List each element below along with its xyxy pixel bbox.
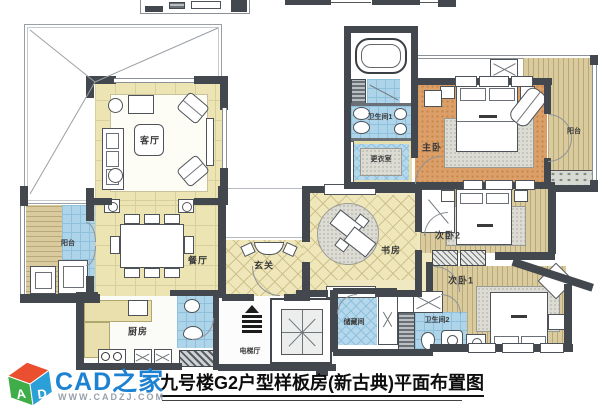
dining-chair (184, 236, 194, 254)
side-table (424, 90, 442, 107)
wall-segment (76, 292, 98, 298)
plan-shape (351, 103, 411, 106)
window (592, 58, 597, 184)
dressing-room-label: 更衣室 (371, 154, 392, 164)
wall-segment (213, 292, 219, 370)
elevator-shaft (270, 298, 332, 364)
dining-chair (164, 268, 180, 278)
wall-segment (170, 290, 218, 296)
master-bed (456, 84, 518, 152)
dining-chair (110, 236, 120, 254)
window-box (540, 343, 564, 353)
wall-segment (544, 84, 551, 114)
study-label: 书房 (381, 244, 401, 257)
dining-chair (144, 268, 160, 278)
top-drawing-fragment-wall (285, 0, 331, 5)
wall-segment (330, 290, 338, 352)
wall-segment (222, 294, 254, 301)
wall-segment (86, 198, 112, 205)
headboard-panel (455, 76, 477, 87)
console-table (128, 95, 154, 114)
washbasin (394, 108, 407, 120)
cushion (489, 88, 515, 101)
bath1-cabinet (351, 79, 366, 104)
wall-segment (590, 180, 598, 192)
window-bench (206, 118, 214, 166)
storage-label: 储藏间 (344, 317, 365, 327)
dresser (432, 250, 458, 266)
window (222, 108, 227, 170)
foyer-label: 玄关 (254, 259, 274, 272)
wall-panel (485, 180, 513, 190)
column (178, 199, 194, 213)
cushion (486, 193, 509, 204)
wall-segment (495, 252, 555, 260)
washing-machine (30, 266, 56, 294)
wall-segment (344, 182, 420, 189)
wall-segment (86, 205, 94, 221)
wall-segment (220, 76, 228, 110)
wall-segment (564, 284, 572, 350)
nightstand (441, 190, 455, 202)
plan-shape (331, 2, 371, 3)
window (114, 78, 196, 83)
wall-segment (590, 55, 598, 65)
plan-shape (420, 2, 438, 3)
furniture (191, 1, 221, 9)
wall-segment (302, 186, 310, 242)
wall-segment (218, 186, 226, 242)
washbasin (394, 123, 407, 135)
balcony-left-label: 阳台 (61, 238, 75, 248)
decor-dash (479, 115, 497, 118)
dining-table (120, 224, 184, 268)
elevator-hall-label: 电梯厅 (240, 346, 261, 356)
wall-segment (218, 364, 336, 371)
bedroom2-label: 次卧2 (435, 229, 461, 242)
side-table (108, 168, 123, 183)
plan-shape (113, 352, 122, 361)
dining-room-label: 餐厅 (188, 254, 208, 267)
dresser (460, 250, 486, 266)
ac-shaft (398, 312, 415, 352)
top-drawing-fragment-left (140, 0, 250, 14)
decor-dash (511, 315, 527, 318)
stairs-bar (242, 325, 262, 328)
wall-segment (296, 290, 328, 297)
nightstand (440, 86, 455, 99)
wall-segment (438, 0, 456, 7)
cushion (35, 272, 52, 289)
toilet (353, 121, 370, 134)
bathroom2-label: 卫生间2 (425, 315, 450, 325)
plan-shape (361, 44, 401, 68)
wall-segment (231, 0, 247, 12)
dining-chair (124, 268, 140, 278)
plan-shape (101, 352, 110, 361)
plan-shape (457, 121, 517, 122)
window-box (468, 343, 496, 353)
bedroom1-label: 次卧1 (448, 274, 474, 287)
drawing-title: 九号楼G2户型样板房(新古典)平面布置图 (160, 372, 484, 397)
louver-panel (169, 2, 185, 9)
wall-segment (218, 242, 226, 298)
bathroom1-label: 卫生间1 (368, 112, 393, 122)
wall-panel (463, 180, 483, 190)
stairs-bar (242, 320, 262, 323)
window (20, 205, 25, 295)
bath1-shower (367, 79, 400, 105)
hall-closet (378, 293, 398, 345)
kitchen-label: 厨房 (128, 325, 148, 338)
nightstand (514, 190, 528, 202)
wall-segment (333, 349, 433, 356)
wall-segment (344, 26, 418, 33)
brand-logo-icon: A D (6, 360, 54, 408)
wall-segment (411, 26, 418, 84)
fridge (128, 300, 148, 316)
headboard-panel (511, 76, 533, 87)
cushion (460, 88, 486, 101)
title-underline (162, 400, 462, 401)
side-table (108, 98, 123, 113)
window-box (502, 343, 534, 353)
plan-shape (182, 202, 192, 212)
plan-shape (281, 309, 323, 355)
balcony-right-label: 阳台 (567, 126, 581, 136)
wall-segment (548, 186, 556, 254)
cushion (460, 193, 483, 204)
dining-chair (124, 214, 140, 224)
wall-panel (515, 180, 535, 190)
cushion (63, 266, 84, 288)
plan-shape (245, 305, 259, 313)
cushion (106, 151, 119, 167)
floor-plan-canvas: 客厅 餐厅 厨房 玄关 电梯厅 书房 主卧 次卧2 次卧1 卫生间1 卫生间2 … (0, 0, 600, 410)
cross-line (184, 163, 203, 179)
stairs-bar (242, 315, 262, 318)
cross-line (302, 310, 303, 354)
wall-segment (344, 26, 351, 189)
wall-segment (415, 186, 422, 232)
cross-line (369, 85, 397, 101)
living-room-label: 客厅 (140, 134, 160, 147)
stairs-icon (241, 305, 263, 337)
wall-segment (415, 250, 422, 294)
laundry-cabinet (58, 260, 88, 294)
light-well-shaft (179, 350, 214, 367)
stairs-bar (242, 330, 262, 333)
master-bedroom-label: 主卧 (422, 141, 442, 154)
headboard-panel (479, 76, 509, 87)
wall-segment (426, 262, 433, 292)
wall-segment (76, 296, 84, 370)
bedroom2-bed (456, 189, 512, 245)
cross-line (183, 100, 202, 116)
wall-segment (145, 6, 163, 12)
bathtub (355, 38, 407, 74)
dining-chair (164, 214, 180, 224)
brand-website-link[interactable]: WWW.CADZJ.COM (58, 392, 165, 402)
dining-chair (144, 214, 160, 224)
wall-segment (411, 84, 418, 158)
wall-segment (86, 76, 94, 98)
plan-shape (351, 138, 411, 141)
cushion (106, 133, 119, 149)
wall-segment (20, 186, 28, 206)
decor-dash (477, 224, 493, 227)
void-area (222, 188, 308, 238)
wall-segment (372, 0, 420, 5)
washbasin (184, 299, 200, 313)
